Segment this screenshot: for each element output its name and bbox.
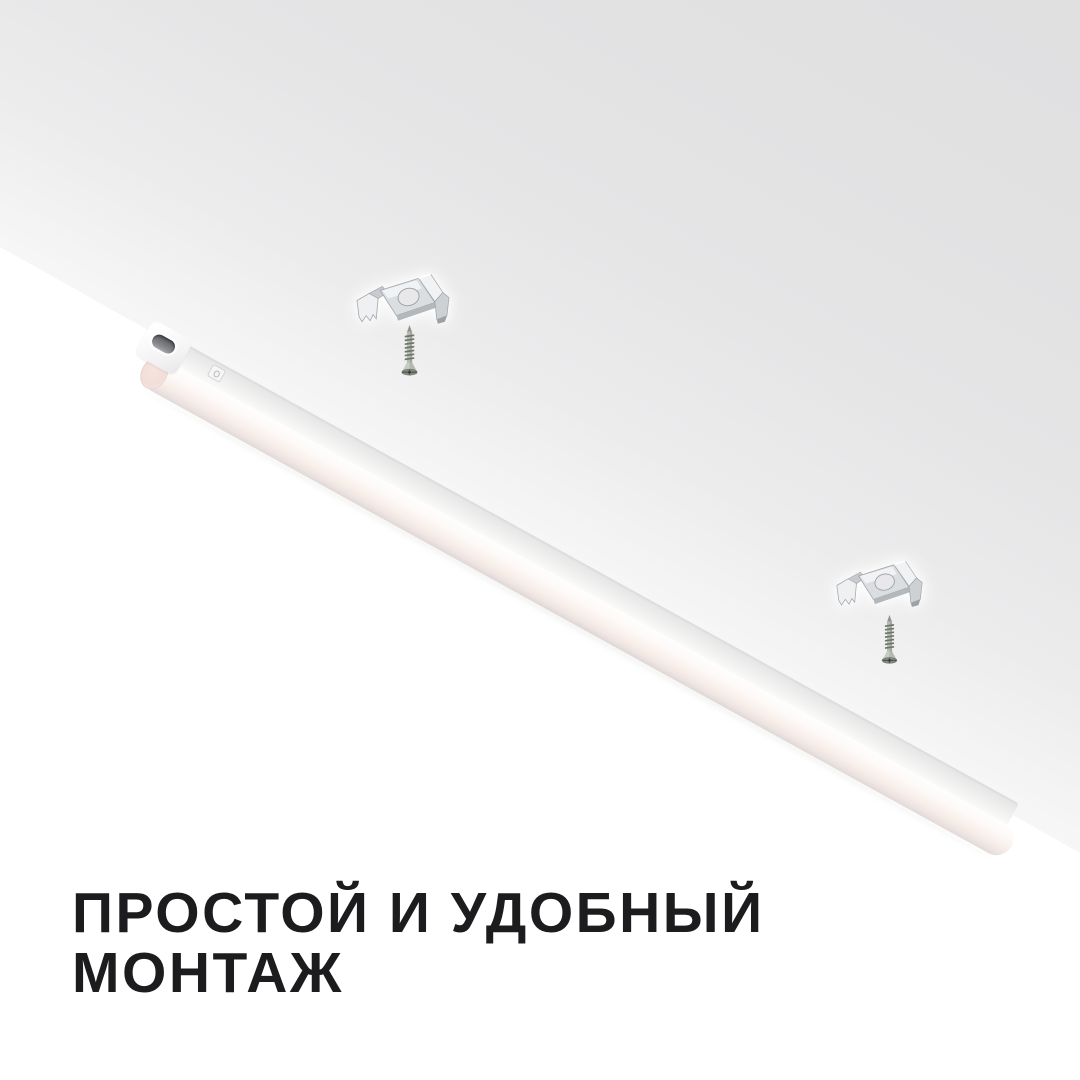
mounting-clip: [835, 558, 925, 609]
product-scene: ПРОСТОЙ И УДОБНЫЙ МОНТАЖ: [0, 0, 1080, 1080]
caption: ПРОСТОЙ И УДОБНЫЙ МОНТАЖ: [72, 883, 765, 1003]
mounting-screw: [400, 324, 419, 379]
mounting-clip-icon: [355, 271, 452, 326]
caption-line-2: МОНТАЖ: [72, 943, 765, 1003]
caption-line-1: ПРОСТОЙ И УДОБНЫЙ: [72, 883, 765, 943]
mounting-clip: [355, 271, 452, 326]
mounting-clip-icon: [835, 558, 925, 609]
screw-icon: [400, 324, 419, 379]
screw-icon: [880, 614, 899, 667]
power-socket-opening: [150, 332, 178, 356]
mounting-screw: [880, 614, 899, 667]
